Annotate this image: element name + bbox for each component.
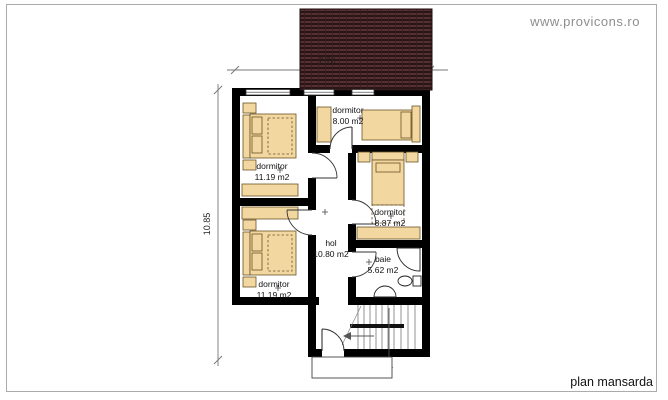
dimension-width-label: 7.70	[318, 56, 336, 66]
room-label-area: 5.62 m2	[368, 265, 399, 275]
nightstand	[243, 160, 256, 170]
sheet-title: plan mansarda	[570, 375, 653, 389]
bedroom-top-left-furniture	[242, 103, 298, 196]
windows	[246, 90, 374, 96]
door-balcony	[322, 329, 344, 351]
pillow	[401, 112, 411, 138]
room-label-name: dormitor	[374, 207, 405, 217]
drawing-sheet: dormitor 8.00 m2 dormitor 11.19 m2 dormi…	[0, 0, 668, 400]
wall-bath-bottom	[348, 297, 430, 305]
bedroom-bottom-left-furniture	[242, 207, 298, 287]
headboard	[412, 106, 420, 142]
room-label-area: 8.00 m2	[333, 116, 364, 126]
left-arrow-icon	[343, 332, 351, 340]
roof-tiles	[300, 9, 432, 90]
pillow	[252, 234, 262, 251]
wall-bath-top	[348, 240, 430, 248]
nightstand	[243, 220, 256, 230]
wall-topright-room-a	[316, 145, 330, 153]
pillow	[252, 136, 262, 153]
room-label-name: hol	[325, 238, 336, 248]
room-label-area: 8.87 m2	[375, 218, 406, 228]
room-label-name: dormitor	[256, 161, 287, 171]
wall-right-corridor-a	[348, 153, 356, 200]
room-label-area: 11.19 m2	[257, 290, 292, 300]
shower	[397, 248, 420, 271]
room-label-name: dormitor	[258, 279, 289, 289]
pillow	[252, 253, 262, 270]
stair-handrail	[350, 324, 404, 328]
door-bedroom-top-left	[312, 153, 337, 178]
roof	[300, 9, 432, 90]
dimension-height-label: 10.85	[202, 213, 212, 236]
room-label-area: 10.80 m2	[313, 249, 349, 259]
nightstand	[406, 152, 418, 162]
wall-hall-upper	[308, 96, 316, 153]
room-label-name: dormitor	[332, 105, 363, 115]
dresser	[357, 227, 420, 239]
wall-between-left-bedrooms	[232, 198, 316, 206]
room-label-area: 11.19 m2	[255, 172, 290, 182]
floor-plan-svg: dormitor 8.00 m2 dormitor 11.19 m2 dormi…	[0, 0, 668, 400]
watermark-text: www.provicons.ro	[529, 14, 640, 29]
wall-bottom-b	[344, 349, 430, 357]
sink	[374, 286, 396, 297]
wardrobe	[317, 107, 331, 142]
toilet	[398, 276, 412, 286]
wall-left	[232, 88, 240, 305]
dresser	[242, 184, 298, 196]
wall-right	[422, 88, 430, 357]
door-bedroom-top-right	[330, 127, 352, 149]
toilet-tank	[413, 276, 421, 286]
balcony	[312, 357, 392, 378]
nightstand	[243, 103, 256, 113]
pillow	[376, 163, 400, 172]
dresser	[242, 207, 298, 219]
headboard	[243, 232, 250, 275]
headboard	[372, 152, 404, 160]
nightstand	[243, 277, 256, 287]
room-label-name: baie	[375, 254, 391, 264]
headboard	[243, 115, 250, 158]
nightstand	[358, 152, 370, 162]
pillow	[252, 117, 262, 134]
dimension-left	[214, 84, 222, 366]
